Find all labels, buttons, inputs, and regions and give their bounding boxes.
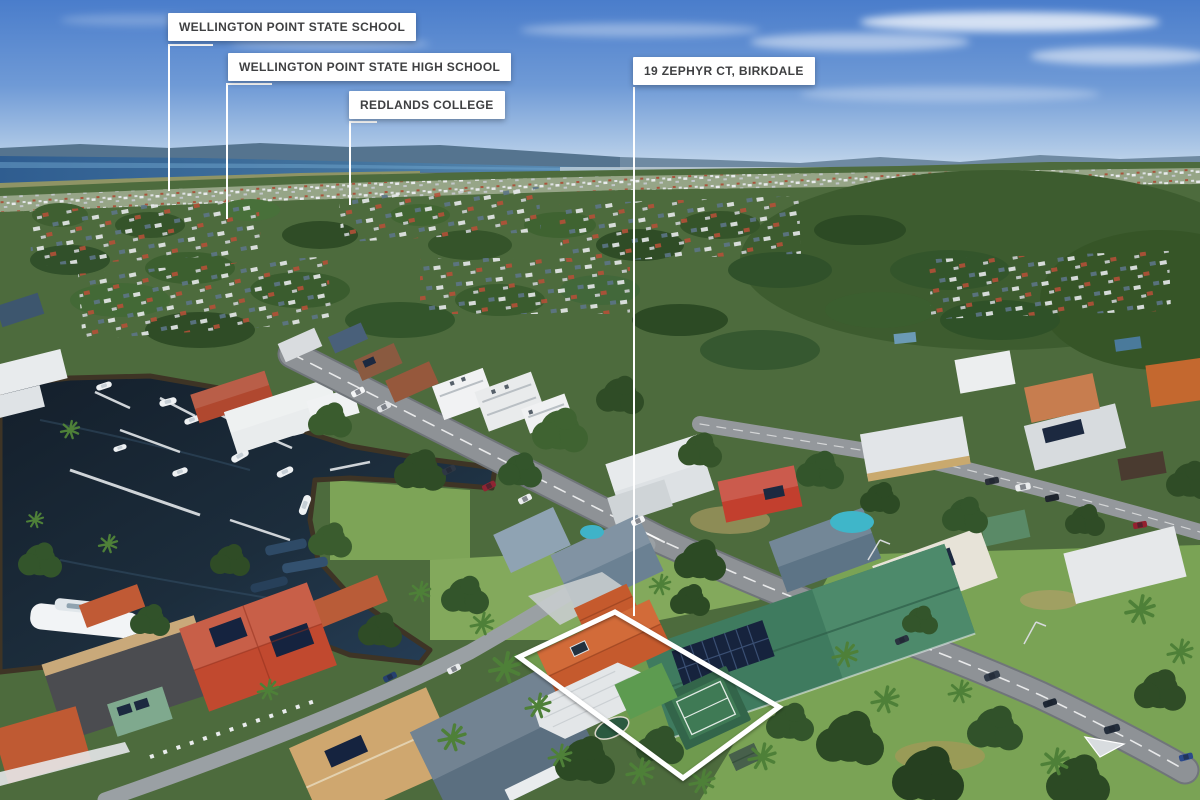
label-redlands-college: REDLANDS COLLEGE xyxy=(349,91,505,119)
label-wellington-point-state-high-school: WELLINGTON POINT STATE HIGH SCHOOL xyxy=(228,53,511,81)
label-property-address: 19 ZEPHYR CT, BIRKDALE xyxy=(633,57,815,85)
label-wellington-point-state-school: WELLINGTON POINT STATE SCHOOL xyxy=(168,13,416,41)
aerial-photo-stage: WELLINGTON POINT STATE SCHOOL WELLINGTON… xyxy=(0,0,1200,800)
aerial-photo xyxy=(0,0,1200,800)
